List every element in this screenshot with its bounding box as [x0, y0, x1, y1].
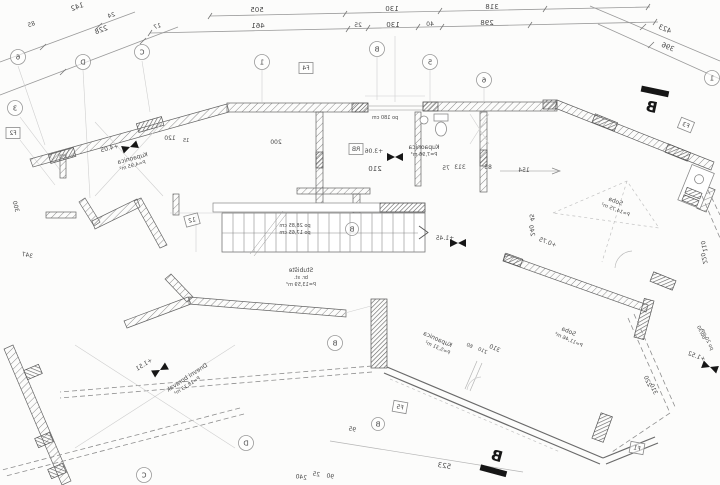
grid-bubble-Bm: B	[328, 336, 343, 351]
box-marker-label: RB	[352, 146, 360, 153]
room-name: Stubište	[288, 267, 313, 274]
dim-label: 15	[183, 138, 189, 144]
window-block	[423, 102, 438, 111]
dim-label: 130	[386, 21, 399, 29]
box-marker-label: F2	[9, 130, 16, 137]
grid-bubble-Db: D	[239, 436, 254, 451]
grid-bubble-label: 1	[710, 75, 714, 83]
wall-partition-h1	[297, 188, 370, 194]
stair-note: po 17,65 cm	[279, 230, 310, 236]
note-label: po 180 cm	[372, 115, 399, 121]
wall-top-b	[423, 102, 557, 111]
grid-bubble-label: 1	[260, 59, 264, 67]
dim-label: 85	[484, 164, 492, 171]
dim-label: 313	[454, 164, 466, 171]
grid-bubble-1: 1	[255, 55, 270, 70]
level-label: +1.45	[436, 235, 455, 242]
dim-label: 25	[312, 470, 321, 478]
toilet-tank	[434, 114, 448, 121]
grid-bubble-label: 6	[481, 77, 486, 85]
grid-bubble-Bb: B	[372, 418, 385, 431]
wall-stub	[46, 212, 76, 218]
grid-bubble-label: C	[139, 49, 144, 57]
grid-bubble-label: 6	[15, 54, 20, 62]
grid-bubble-1b: 1	[705, 71, 720, 86]
box-marker-label: F5	[396, 403, 405, 411]
dim-label: 45	[527, 213, 535, 222]
grid-bubble-label: B	[349, 226, 354, 234]
grid-bubble-label: 3	[13, 105, 17, 113]
room-name: Kupaonica	[408, 144, 439, 151]
wall-gable-vertical	[371, 299, 387, 368]
dim-label: 130	[385, 5, 398, 13]
wall-top-a	[227, 103, 368, 112]
box-marker-F1: F1	[629, 441, 645, 454]
dim-label: 95	[348, 425, 357, 433]
floor-plan-page: 6 D C 1 B 5 6 1 3 B B D C B F2 F4 F3 RB …	[0, 0, 720, 485]
grid-bubble-B: B	[370, 42, 385, 57]
grid-bubble-label: D	[80, 59, 85, 67]
grid-bubble-3: 3	[8, 101, 23, 116]
box-marker-RB: RB	[349, 144, 363, 155]
dim-label: 210	[368, 165, 381, 173]
dim-label: 25	[354, 22, 362, 29]
grid-bubble-C: C	[135, 45, 150, 60]
dim-label: 505	[250, 6, 263, 14]
room-area: P=13,59 m²	[286, 282, 316, 288]
dim-label: 298	[480, 19, 493, 27]
grid-bubble-label: B	[332, 340, 337, 348]
grid-bubble-Cb: C	[137, 468, 152, 483]
grid-bubble-label: C	[141, 472, 146, 480]
grid-bubble-6b: 6	[477, 73, 492, 88]
box-marker-F4: F4	[299, 63, 313, 74]
level-label: +3.06	[365, 148, 384, 155]
box-marker-F2: F2	[6, 128, 20, 139]
floor-plan-canvas: 6 D C 1 B 5 6 1 3 B B D C B F2 F4 F3 RB …	[0, 0, 720, 485]
window-block	[316, 152, 323, 168]
dim-label: 90	[326, 472, 335, 480]
dim-label: 154	[518, 167, 530, 174]
wall-stub	[173, 194, 179, 215]
stair-bubble-B: B	[346, 223, 359, 236]
room-sub: br. st.	[294, 275, 309, 281]
grid-bubble-5: 5	[423, 55, 438, 70]
room-area: P=7,96 m²	[411, 152, 438, 158]
dim-label: 461	[251, 22, 264, 30]
window-block	[380, 203, 425, 212]
dim-label: 200	[270, 139, 282, 146]
grid-bubble-label: B	[375, 421, 380, 429]
window-block	[352, 103, 368, 112]
wall-stub	[60, 155, 66, 178]
stair-note: po 28,85 cm	[279, 223, 310, 229]
dim-label: 318	[485, 3, 498, 11]
dim-label: 75	[442, 165, 450, 172]
box-marker-label: F1	[633, 444, 642, 452]
sink-fixture	[420, 116, 428, 124]
grid-bubble-6: 6	[11, 50, 26, 65]
box-marker-label: F4	[302, 65, 309, 72]
dim-label: 40	[426, 21, 434, 28]
grid-bubble-label: B	[374, 46, 379, 54]
toilet-fixture	[436, 122, 447, 136]
box-marker-F5: F5	[392, 400, 408, 413]
dim-label: 120	[164, 135, 176, 142]
grid-bubble-D: D	[76, 55, 91, 70]
grid-bubble-label: D	[243, 440, 248, 448]
grid-bubble-label: 5	[428, 59, 432, 67]
